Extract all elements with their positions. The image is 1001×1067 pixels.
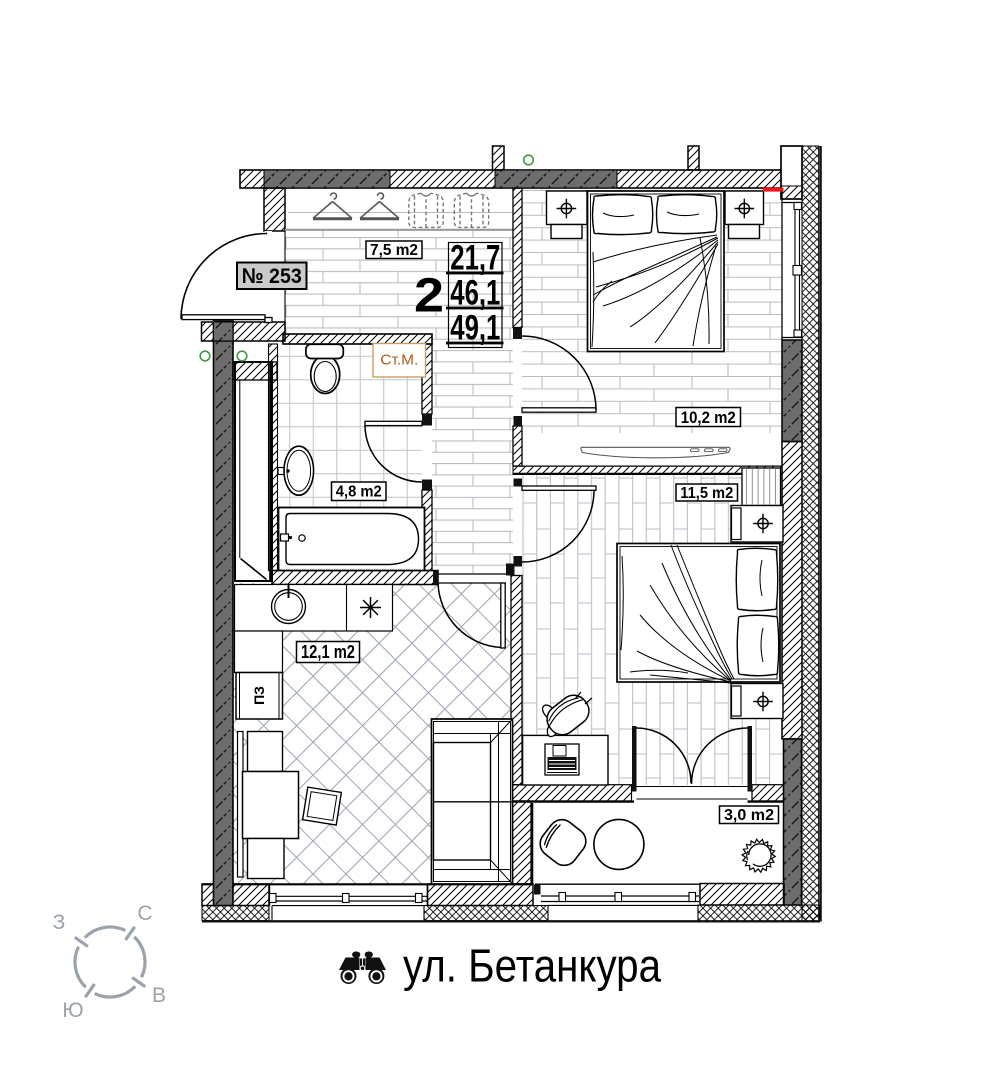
svg-text:3,0 m2: 3,0 m2 xyxy=(724,807,774,824)
svg-text:ул. Бетанкура: ул. Бетанкура xyxy=(403,940,661,992)
svg-text:10,2 m2: 10,2 m2 xyxy=(681,408,736,427)
svg-text:7,5 m2: 7,5 m2 xyxy=(370,242,418,259)
svg-text:12,1 m2: 12,1 m2 xyxy=(301,642,355,662)
svg-text:4,8 m2: 4,8 m2 xyxy=(336,484,382,501)
svg-text:Ст.М.: Ст.М. xyxy=(380,353,418,369)
svg-text:46,1: 46,1 xyxy=(450,274,500,313)
svg-text:В: В xyxy=(152,984,166,1007)
svg-text:С: С xyxy=(137,902,152,925)
svg-text:2: 2 xyxy=(414,270,444,323)
svg-text:49,1: 49,1 xyxy=(450,309,500,348)
svg-text:Ю: Ю xyxy=(62,999,83,1022)
svg-text:ПЗ: ПЗ xyxy=(251,686,267,705)
svg-text:З: З xyxy=(53,911,66,934)
svg-text:21,7: 21,7 xyxy=(450,239,500,278)
svg-text:11,5 m2: 11,5 m2 xyxy=(680,485,733,502)
svg-text:№ 253: № 253 xyxy=(242,264,302,288)
